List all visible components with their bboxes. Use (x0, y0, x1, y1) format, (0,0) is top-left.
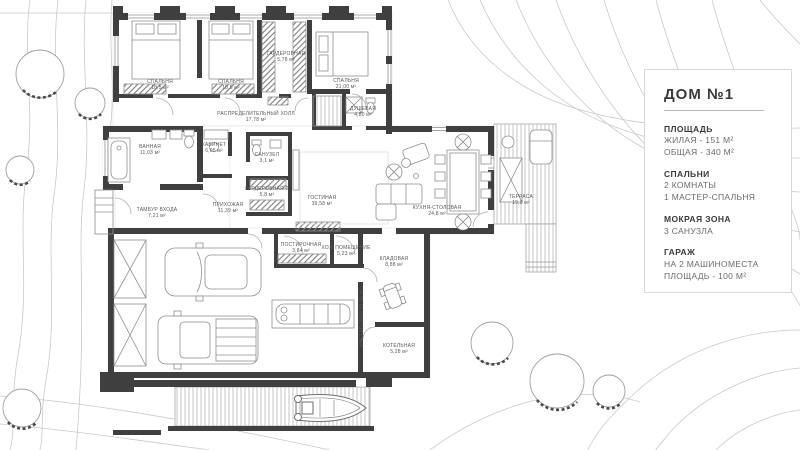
desk-icon (204, 130, 228, 139)
section-heading: ГАРАЖ (664, 246, 791, 258)
wardrobe-hatch (250, 179, 286, 189)
round-table-icon (502, 136, 514, 148)
wardrobe-hatch (250, 200, 284, 210)
section-heading: МОКРАЯ ЗОНА (664, 213, 791, 225)
info-section-area: ПЛОЩАДЬ ЖИЛАЯ - 151 М² ОБЩАЯ - 340 М² (664, 123, 791, 159)
section-line: 1 МАСТЕР-СПАЛЬНЯ (664, 192, 791, 204)
section-line: 2 КОМНАТЫ (664, 180, 791, 192)
chair-icon (210, 143, 219, 152)
info-section-bedrooms: СПАЛЬНИ 2 КОМНАТЫ 1 МАСТЕР-СПАЛЬНЯ (664, 168, 791, 204)
toilet-icon (252, 140, 261, 156)
pickup-truck-icon (158, 311, 258, 369)
bed-icon (132, 21, 180, 79)
section-heading: ПЛОЩАДЬ (664, 123, 791, 135)
floor-lamp-icon (414, 174, 419, 179)
trailer-icon (272, 300, 354, 328)
section-line: 3 САНУЗЛА (664, 226, 791, 238)
wardrobe-hatch (268, 97, 288, 105)
toilet-icon (184, 130, 194, 148)
wardrobe-hatch (124, 84, 166, 94)
bed-icon (316, 32, 368, 76)
section-line: ПЛОЩАДЬ - 100 М² (664, 271, 791, 283)
info-section-wet-zone: МОКРАЯ ЗОНА 3 САНУЗЛА (664, 213, 791, 237)
sink-icon (270, 140, 281, 148)
wardrobe-hatch (293, 22, 306, 92)
bathtub-icon (108, 138, 130, 182)
site-plan-page: СПАЛЬНЯ 18,5 м² СПАЛЬНЯ 18,5 м² ГАРДЕРОБ… (0, 0, 800, 450)
title-divider (664, 110, 764, 111)
shower-icon (346, 97, 362, 113)
suv-car-icon (165, 243, 261, 301)
lounge-chair-icon (530, 130, 552, 164)
wardrobe-hatch (212, 84, 254, 94)
section-line: ЖИЛАЯ - 151 М² (664, 135, 791, 147)
sink-icon (152, 130, 166, 139)
section-heading: СПАЛЬНИ (664, 168, 791, 180)
bed-icon (209, 21, 253, 79)
wardrobe-hatch (296, 222, 340, 231)
planter-icon (500, 158, 522, 202)
toilet-icon (366, 98, 375, 114)
sink-icon (170, 130, 182, 139)
tv-console (293, 150, 299, 190)
wardrobe-hatch (262, 22, 275, 92)
house-info-card: ДОМ №1 ПЛОЩАДЬ ЖИЛАЯ - 151 М² ОБЩАЯ - 34… (644, 69, 792, 293)
wardrobe-hatch (278, 254, 326, 263)
wardrobe-hatch (313, 96, 341, 126)
house-title: ДОМ №1 (664, 86, 791, 103)
section-line: НА 2 МАШИНОМЕСТА (664, 259, 791, 271)
section-line: ОБЩАЯ - 340 М² (664, 147, 791, 159)
info-section-garage: ГАРАЖ НА 2 МАШИНОМЕСТА ПЛОЩАДЬ - 100 М² (664, 246, 791, 282)
